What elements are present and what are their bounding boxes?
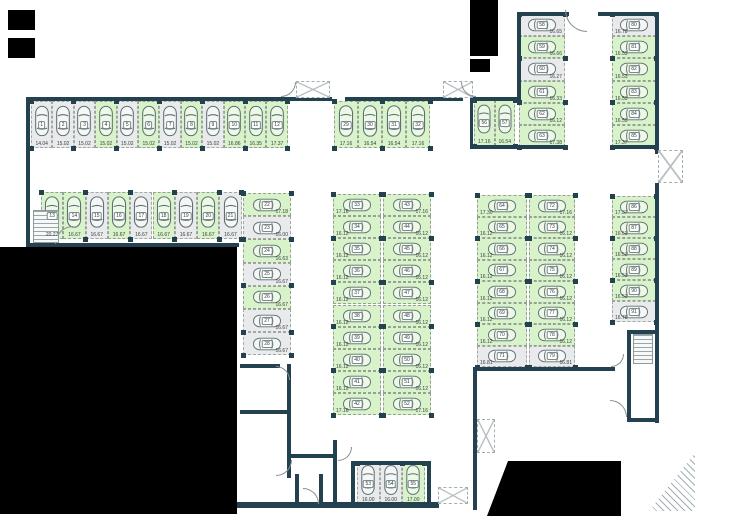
parking-space-85[interactable]: 8517.37 [612,125,656,147]
wall-pillar [289,330,294,335]
space-area-label: 16.53 [615,74,628,80]
space-number: 22 [262,201,273,209]
space-area-label: 16.67 [275,325,288,331]
parking-space-38[interactable]: 3816.12 [333,305,381,327]
space-area-label: 16.78 [615,315,628,321]
wall-pillar [573,193,578,198]
door-swing-icon [281,82,296,97]
wall-pillar [610,100,615,105]
space-area-label: 16.53 [615,118,628,124]
space-number: 85 [629,132,640,140]
space-number: 5 [123,121,131,129]
parking-space-6[interactable]: 615.02 [138,101,159,148]
space-number: 41 [352,378,363,386]
space-area-label: 16.12 [336,275,349,281]
wall-pillar [289,237,294,242]
vent-shaft-icon [438,487,468,504]
space-area-label: 16.12 [415,297,428,303]
parking-space-8[interactable]: 815.02 [181,101,202,148]
parking-space-39[interactable]: 3916.12 [333,327,381,349]
wall-pillar [573,322,578,327]
wall-segment [627,330,631,422]
space-number: 23 [262,224,273,232]
space-area-label: 16.00 [275,232,288,238]
door-swing-icon [565,10,587,32]
space-number: 34 [352,223,363,231]
parking-space-58[interactable]: 5816.65 [519,14,565,36]
space-area-label: 16.12 [559,339,572,345]
parking-space-52[interactable]: 5217.16 [383,393,431,415]
wall-segment [240,364,280,368]
wall-pillar [381,413,386,418]
wall-segment [470,145,521,149]
door-swing-icon [303,488,319,504]
masked-region [8,10,35,30]
parking-space-48[interactable]: 4816.12 [383,305,431,327]
space-number: 10 [229,121,240,129]
parking-space-4[interactable]: 415.02 [95,101,116,148]
space-area-label: 16.00 [381,497,402,503]
wall-pillar [381,192,386,197]
space-number: 57 [499,119,510,127]
parking-space-24[interactable]: 2416.63 [243,239,291,262]
space-number: 18 [158,212,169,220]
parking-space-10[interactable]: 1016.86 [224,101,245,148]
wall-segment [26,97,30,247]
parking-space-16[interactable]: 1616.67 [108,192,130,239]
space-number: 42 [352,400,363,408]
wall-pillar [128,190,133,195]
wall-pillar [573,236,578,241]
wall-segment [517,12,521,102]
space-number: 44 [402,223,413,231]
space-area-label: 16.12 [336,231,349,237]
wall-pillar [217,190,222,195]
parking-space-42[interactable]: 4217.16 [333,393,381,415]
wall-pillar [563,100,568,105]
space-area-label: 16.81 [559,360,572,366]
space-number: 17 [136,212,147,220]
parking-space-43[interactable]: 4317.16 [383,194,431,216]
wall-pillar [241,191,246,196]
space-number: 38 [352,312,363,320]
space-number: 11 [251,121,261,129]
wall-pillar [527,236,532,241]
space-number: 36 [352,267,363,275]
parking-space-82[interactable]: 8216.53 [612,58,656,80]
space-number: 55 [408,480,419,488]
space-number: 27 [262,317,273,325]
parking-space-29[interactable]: 2917.16 [334,101,358,148]
space-area-label: 16.12 [559,253,572,259]
space-area-label: 16.53 [615,294,628,300]
space-area-label: 16.12 [480,253,493,259]
parking-space-59[interactable]: 5916.66 [519,36,565,58]
space-number: 70 [497,331,508,339]
parking-space-57[interactable]: 5716.54 [495,100,516,146]
wall-pillar [381,324,386,329]
space-area-label: 16.12 [480,296,493,302]
space-number: 58 [537,21,548,29]
parking-space-88[interactable]: 8816.53 [612,238,656,259]
space-area-label: 16.67 [176,232,196,238]
wall-pillar [475,322,480,327]
space-number: 7 [166,121,174,129]
parking-space-50[interactable]: 5016.12 [383,349,431,371]
space-area-label: 16.66 [549,51,562,57]
wall-pillar [381,236,386,241]
space-number: 50 [402,356,413,364]
parking-space-18[interactable]: 1816.67 [153,192,175,239]
space-area-label: 17.38 [549,140,562,146]
space-number: 82 [629,65,640,73]
parking-space-54[interactable]: 5416.00 [380,463,403,504]
space-number: 46 [402,267,413,275]
space-number: 63 [537,132,548,140]
door-swing-icon [610,400,627,417]
space-area-label: 16.12 [415,275,428,281]
parking-space-14[interactable]: 1416.67 [63,192,85,239]
parking-space-89[interactable]: 8916.53 [612,259,656,280]
space-number: 32 [413,121,424,129]
parking-space-61[interactable]: 6116.33 [519,81,565,103]
parking-space-90[interactable]: 9016.53 [612,280,656,301]
space-number: 52 [402,400,413,408]
space-number: 74 [547,245,558,253]
parking-space-56[interactable]: 5617.16 [474,100,495,146]
parking-space-49[interactable]: 4916.12 [383,327,431,349]
space-area-label: 16.67 [131,232,151,238]
space-number: 90 [629,287,640,295]
wall-pillar [332,99,337,104]
space-area-label: 16.00 [358,497,379,503]
wall-pillar [289,191,294,196]
space-area-label: 16.12 [549,118,562,124]
wall-pillar [610,320,615,325]
space-number: 30 [365,121,376,129]
space-number: 87 [629,224,640,232]
space-area-label: 15.02 [203,141,222,147]
parking-space-23[interactable]: 2316.00 [243,216,291,239]
wall-pillar [610,194,615,199]
wall-segment [470,97,521,101]
space-area-label: 16.12 [559,274,572,280]
space-number: 61 [537,88,548,96]
parking-space-69[interactable]: 6916.12 [477,303,527,325]
wall-segment [26,97,332,101]
space-area-label: 15.02 [96,141,115,147]
wall-segment [655,12,659,154]
space-area-label: 16.53 [615,273,628,279]
space-area-label: 16.12 [415,386,428,392]
masked-region [470,0,498,56]
parking-space-37[interactable]: 3716.12 [333,282,381,304]
space-number: 14 [69,212,80,220]
wall-segment [470,97,473,149]
parking-space-30[interactable]: 3016.54 [358,101,382,148]
space-area-label: 16.12 [480,274,493,280]
wall-pillar [331,280,336,285]
space-number: 64 [497,202,508,210]
space-number: 3 [81,121,89,129]
space-area-label: 16.67 [275,302,288,308]
space-number: 51 [402,378,413,386]
space-area-label: 17.16 [407,141,429,147]
wall-segment [319,474,323,504]
space-number: 65 [497,223,508,231]
wall-pillar [39,190,44,195]
parking-space-83[interactable]: 8316.53 [612,81,656,103]
space-number: 29 [341,121,352,129]
wall-segment [237,502,337,508]
parking-space-35[interactable]: 3516.12 [333,238,381,260]
parking-space-9[interactable]: 915.02 [202,101,223,148]
parking-space-28[interactable]: 2816.67 [243,332,291,355]
parking-space-22[interactable]: 2217.18 [243,193,291,216]
wall-pillar [527,193,532,198]
parking-space-7[interactable]: 715.02 [159,101,180,148]
wall-pillar [429,280,434,285]
parking-space-67[interactable]: 6716.12 [477,260,527,282]
parking-space-3[interactable]: 315.02 [74,101,95,148]
space-area-label: 16.12 [336,342,349,348]
space-area-label: 16.12 [480,317,493,323]
space-number: 6 [145,121,153,129]
parking-space-80[interactable]: 8016.78 [612,14,656,36]
parking-space-72[interactable]: 7217.16 [529,195,575,217]
space-area-label: 16.65 [549,29,562,35]
space-number: 91 [629,308,640,316]
space-number: 16 [114,212,125,220]
space-number: 2 [59,121,67,129]
parking-space-32[interactable]: 3217.16 [406,101,430,148]
wall-pillar [241,237,246,242]
space-number: 21 [225,212,236,220]
wall-pillar [527,322,532,327]
space-area-label: 16.54 [496,139,515,145]
parking-space-21[interactable]: 2116.67 [219,192,241,239]
parking-space-91[interactable]: 9116.78 [612,301,656,322]
space-area-label: 16.53 [615,231,628,237]
parking-space-17[interactable]: 1716.67 [130,192,152,239]
space-area-label: 17.00 [403,497,424,503]
parking-space-65[interactable]: 6516.12 [477,217,527,239]
parking-space-45[interactable]: 4516.12 [383,238,431,260]
door-swing-icon [338,447,352,461]
wall-pillar [381,280,386,285]
wall-pillar [563,56,568,61]
parking-space-78[interactable]: 7816.12 [529,324,575,346]
space-number: 79 [547,352,558,360]
space-area-label: 17.37 [615,210,628,216]
space-number: 56 [479,119,490,127]
masked-region [470,59,490,72]
parking-space-33[interactable]: 3317.16 [333,194,381,216]
parking-space-79[interactable]: 7916.81 [529,346,575,368]
parking-space-15[interactable]: 1516.67 [86,192,108,239]
space-area-label: 16.12 [336,364,349,370]
wall-pillar [241,283,246,288]
space-number: 69 [497,309,508,317]
space-number: 26 [262,293,273,301]
space-number: 54 [385,480,396,488]
space-area-label: 16.67 [275,348,288,354]
space-area-label: 15.02 [75,141,94,147]
space-area-label: 17.16 [415,408,428,414]
wall-segment [627,418,659,422]
parking-space-71[interactable]: 7116.81 [477,346,527,368]
space-number: 47 [402,289,413,297]
space-number: 35 [352,245,363,253]
parking-space-40[interactable]: 4016.12 [333,349,381,371]
space-number: 43 [402,201,413,209]
parking-space-36[interactable]: 3616.12 [333,260,381,282]
parking-space-66[interactable]: 6616.12 [477,238,527,260]
parking-space-63[interactable]: 6317.38 [519,125,565,147]
wall-segment [517,12,569,16]
parking-space-46[interactable]: 4616.12 [383,260,431,282]
space-number: 59 [537,43,548,51]
wall-pillar [289,353,294,358]
masked-region [0,247,237,514]
space-area-label: 16.67 [64,232,84,238]
space-area-label: 16.86 [225,141,244,147]
parking-space-77[interactable]: 7716.12 [529,303,575,325]
wall-pillar [381,368,386,373]
space-number: 19 [181,212,192,220]
parking-space-68[interactable]: 6816.12 [477,281,527,303]
parking-space-55[interactable]: 5517.00 [402,463,425,504]
space-number: 39 [352,334,363,342]
space-area-label: 16.12 [480,231,493,237]
space-number: 62 [537,110,548,118]
space-area-label: 15.02 [53,141,72,147]
space-area-label: 16.12 [480,339,493,345]
parking-space-5[interactable]: 515.02 [117,101,138,148]
space-number: 33 [352,201,363,209]
parking-space-53[interactable]: 5316.00 [357,463,380,504]
space-number: 77 [547,309,558,317]
wall-segment [287,454,333,458]
parking-space-73[interactable]: 7316.12 [529,217,575,239]
parking-space-76[interactable]: 7616.12 [529,281,575,303]
space-area-label: 16.12 [559,231,572,237]
wall-segment [295,474,299,504]
parking-space-70[interactable]: 7016.12 [477,324,527,346]
space-area-label: 16.67 [275,279,288,285]
floor-plan: 114.04215.02315.02415.02515.02615.02715.… [0,0,754,522]
parking-space-11[interactable]: 1116.35 [245,101,266,148]
space-area-label: 17.16 [336,209,349,215]
wall-pillar [610,56,615,61]
space-area-label: 16.12 [415,364,428,370]
space-area-label: 16.12 [415,231,428,237]
parking-space-27[interactable]: 2716.67 [243,309,291,332]
parking-space-41[interactable]: 4116.12 [333,371,381,393]
space-number: 66 [497,245,508,253]
wall-pillar [429,192,434,197]
space-area-label: 17.16 [335,141,357,147]
space-number: 60 [537,65,548,73]
space-area-label: 17.30 [480,210,493,216]
wall-segment [473,367,615,371]
space-area-label: 16.12 [559,317,572,323]
space-area-label: 16.12 [336,297,349,303]
space-number: 81 [629,43,640,51]
wall-pillar [83,190,88,195]
space-area-label: 16.67 [87,232,107,238]
space-area-label: 16.67 [198,232,218,238]
parking-space-12[interactable]: 1217.37 [266,101,287,148]
space-area-label: 16.12 [415,253,428,259]
wall-segment [240,410,291,414]
parking-space-84[interactable]: 8416.53 [612,103,656,125]
space-area-label: 17.18 [275,209,288,215]
wall-pillar [475,279,480,284]
parking-space-2[interactable]: 215.02 [52,101,73,148]
parking-space-25[interactable]: 2516.67 [243,263,291,286]
space-number: 76 [547,288,558,296]
parking-space-51[interactable]: 5116.12 [383,371,431,393]
parking-space-26[interactable]: 2616.67 [243,286,291,309]
space-number: 4 [102,121,110,129]
space-number: 68 [497,288,508,296]
space-area-label: 16.63 [275,256,288,262]
wall-pillar [429,368,434,373]
masked-region [8,38,35,58]
parking-space-62[interactable]: 6216.12 [519,103,565,125]
wall-pillar [331,324,336,329]
wall-pillar [527,279,532,284]
space-number: 9 [209,121,217,129]
wall-pillar [475,236,480,241]
space-area-label: 17.37 [615,140,628,146]
parking-space-19[interactable]: 1916.67 [175,192,197,239]
parking-space-87[interactable]: 8716.53 [612,217,656,238]
wall-segment [598,12,659,16]
space-area-label: 17.16 [559,210,572,216]
parking-space-81[interactable]: 8116.53 [612,36,656,58]
parking-space-1[interactable]: 114.04 [31,101,52,148]
wall-pillar [475,193,480,198]
space-area-label: 17.37 [267,141,286,147]
parking-space-64[interactable]: 6417.30 [477,195,527,217]
space-number: 84 [629,110,640,118]
wall-pillar [429,413,434,418]
wall-pillar [610,236,615,241]
vent-shaft-icon [296,81,330,98]
space-area-label: 16.78 [615,29,628,35]
space-area-label: 20.27 [42,232,62,238]
parking-space-86[interactable]: 8617.37 [612,196,656,217]
space-area-label: 16.67 [220,232,240,238]
space-number: 25 [262,270,273,278]
parking-space-75[interactable]: 7516.12 [529,260,575,282]
parking-space-44[interactable]: 4416.12 [383,216,431,238]
parking-space-47[interactable]: 4716.12 [383,282,431,304]
parking-space-74[interactable]: 7416.12 [529,238,575,260]
space-area-label: 16.12 [415,320,428,326]
space-area-label: 16.53 [615,96,628,102]
wall-segment [351,461,355,507]
parking-space-20[interactable]: 2016.67 [197,192,219,239]
parking-space-31[interactable]: 3116.54 [382,101,406,148]
space-number: 31 [389,121,400,129]
parking-space-60[interactable]: 6016.27 [519,58,565,80]
space-number: 75 [547,266,558,274]
space-area-label: 15.02 [160,141,179,147]
parking-space-34[interactable]: 3416.12 [333,216,381,238]
